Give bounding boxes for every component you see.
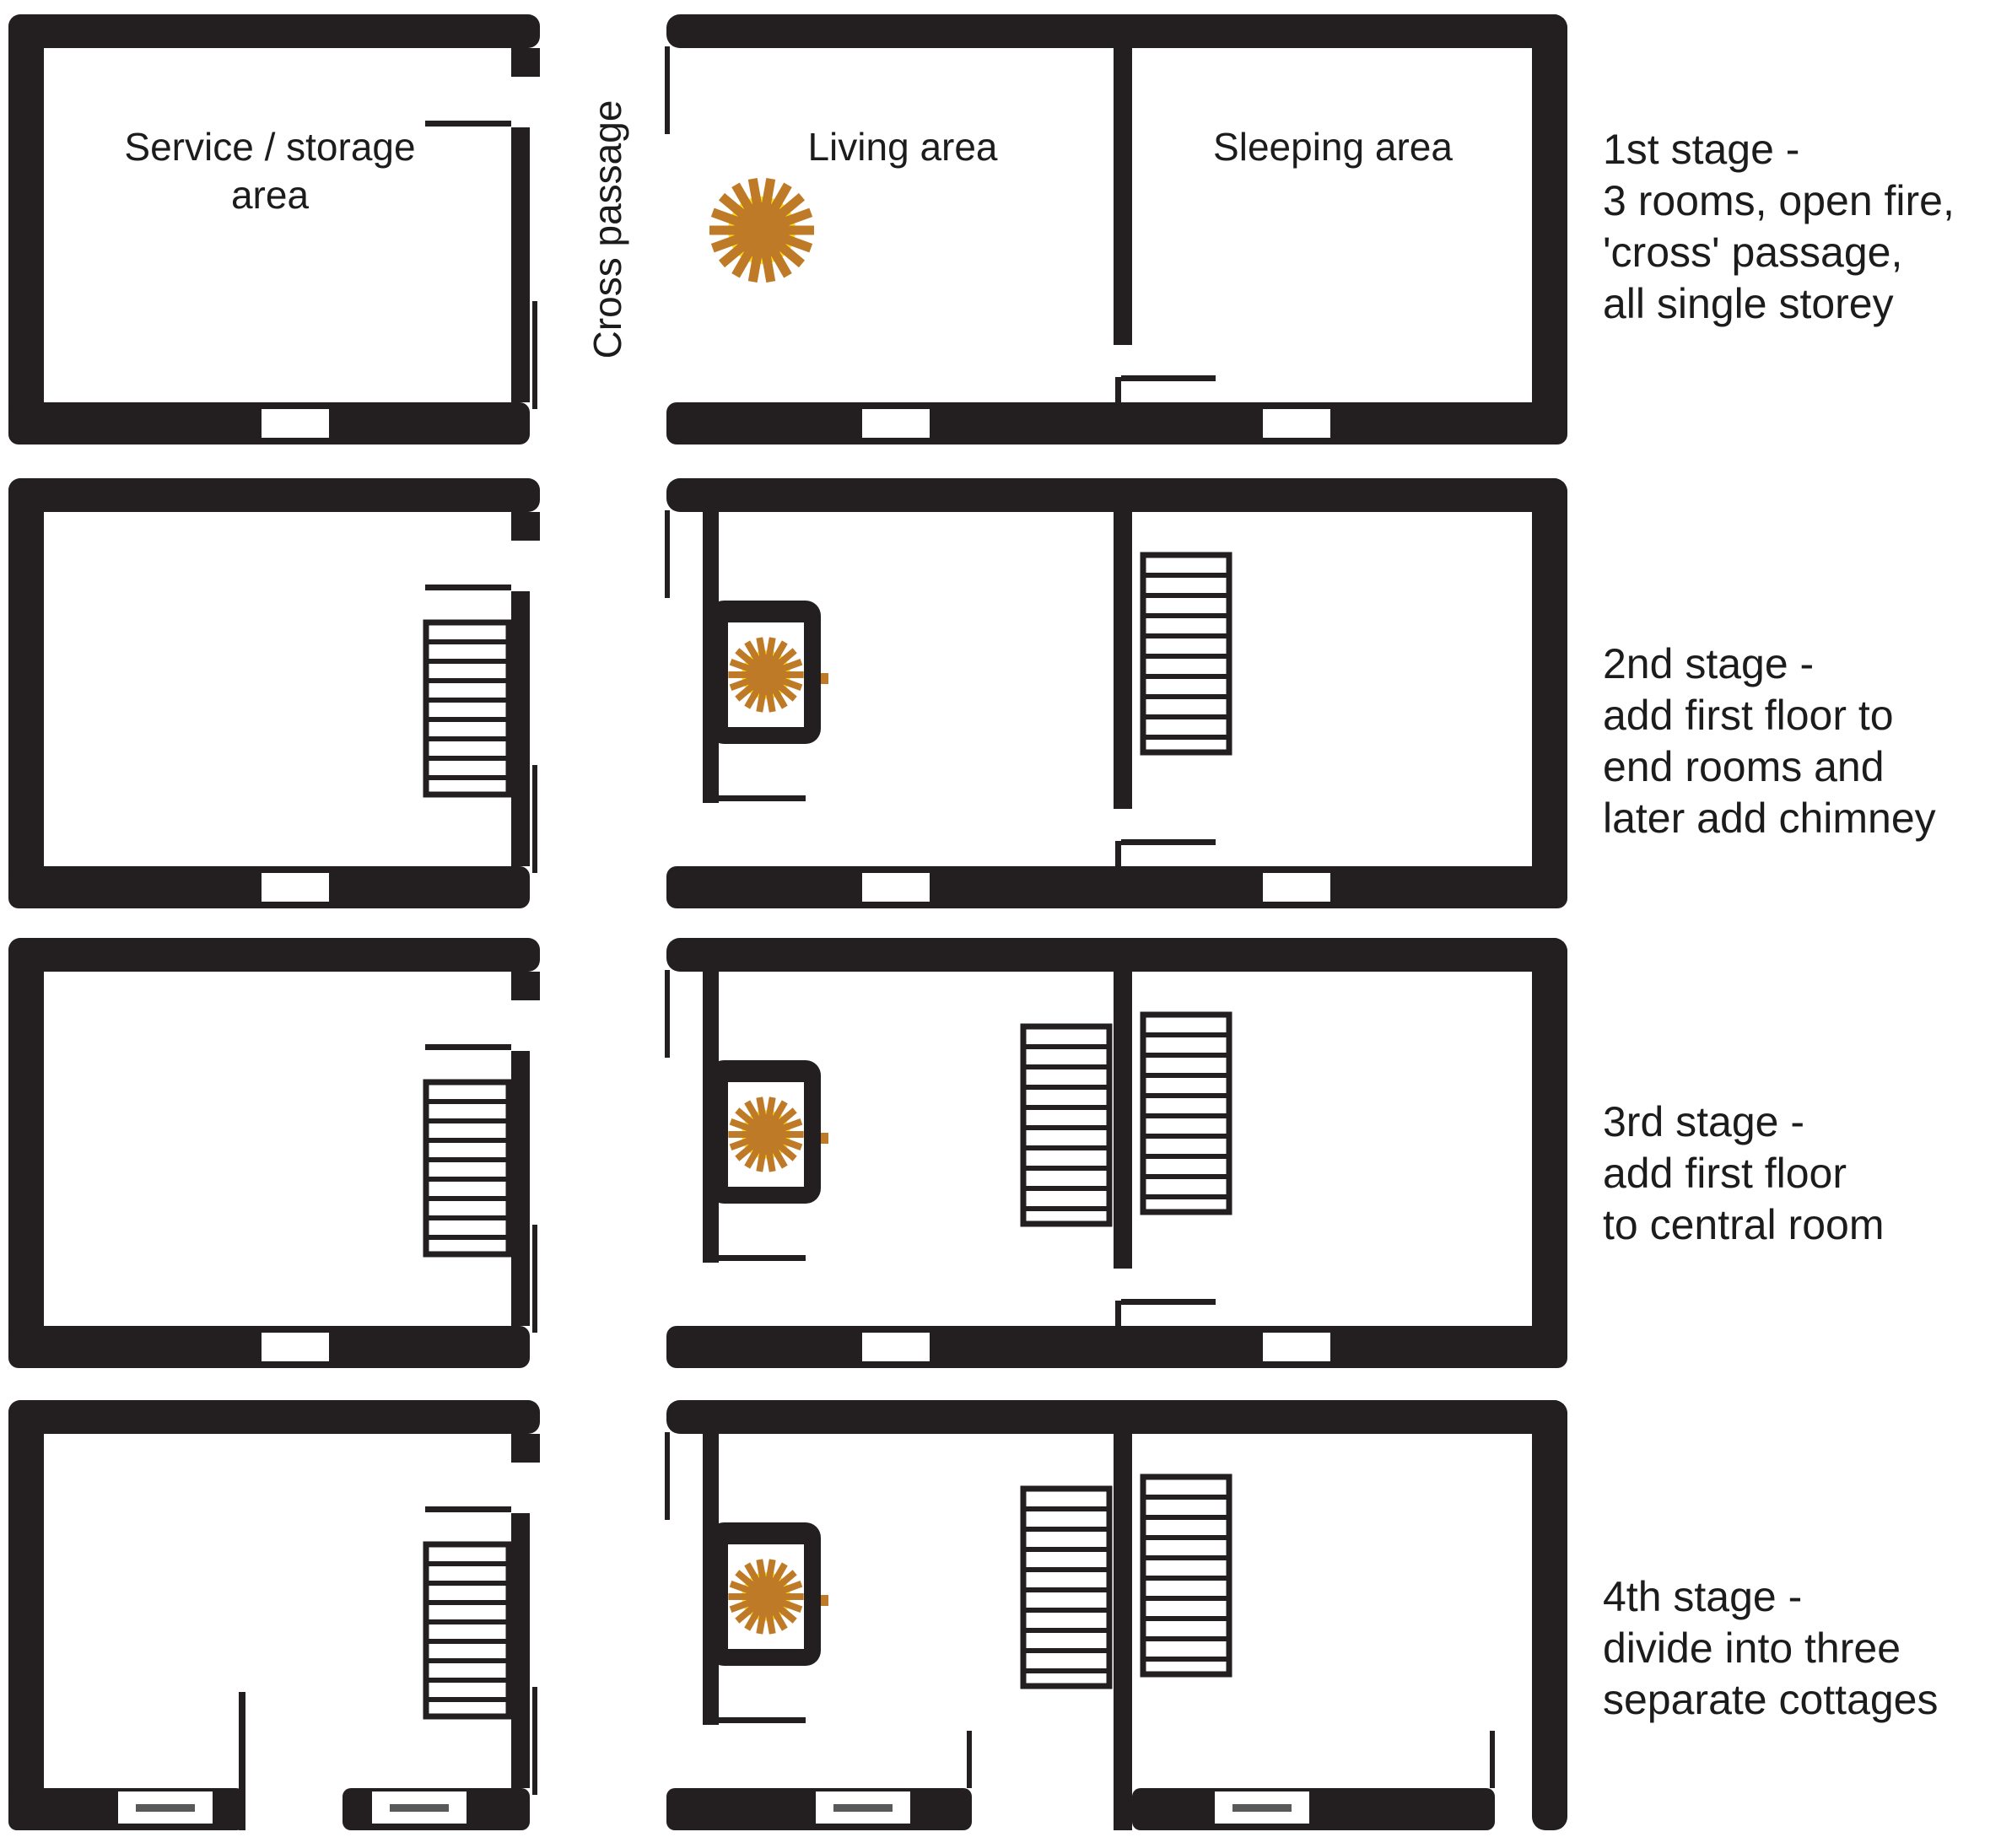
- wall: [666, 938, 1567, 972]
- window-opening-icon: [262, 873, 329, 902]
- wall: [666, 1400, 1567, 1434]
- staircase-icon: [1023, 1026, 1109, 1224]
- window-opening-icon: [1263, 409, 1330, 438]
- caption-line: 3 rooms, open fire,: [1603, 177, 1955, 224]
- stage-1-floorplan: Service / storage area Cross passage Liv…: [8, 14, 1955, 444]
- door-leaf-icon: [719, 1717, 806, 1723]
- caption-line: add first floor to: [1603, 692, 1894, 739]
- wall: [511, 1513, 530, 1788]
- staircase-icon: [1143, 1477, 1229, 1674]
- partition-wall: [239, 1692, 245, 1830]
- wall: [511, 591, 530, 866]
- main-building: [665, 478, 1567, 908]
- door-leaf-icon: [532, 765, 537, 873]
- wall: [1532, 1400, 1567, 1830]
- window-opening-icon: [1263, 1333, 1330, 1361]
- wall: [8, 938, 540, 972]
- window-opening-icon: [1215, 1791, 1309, 1824]
- caption-line: separate cottages: [1603, 1676, 1939, 1723]
- caption-line: 1st stage -: [1603, 126, 1799, 173]
- wall: [1532, 14, 1567, 444]
- service-building: [8, 478, 540, 908]
- dividing-wall: [1114, 1434, 1132, 1830]
- caption-line: 4th stage -: [1603, 1573, 1802, 1620]
- door-jamb: [511, 972, 540, 1000]
- door-jamb: [511, 48, 540, 77]
- caption-line: end rooms and: [1603, 743, 1885, 790]
- main-building: [665, 938, 1567, 1368]
- window-opening-icon: [862, 873, 930, 902]
- door-leaf-icon: [425, 1506, 511, 1512]
- stage-2-caption: 2nd stage - add first floor to end rooms…: [1603, 640, 1936, 842]
- fireplace-nub: [821, 1595, 828, 1606]
- cross-passage-label: Cross passage: [585, 100, 629, 359]
- door-leaf-icon: [532, 301, 537, 409]
- window-opening-icon: [372, 1791, 467, 1824]
- door-jamb: [1115, 1301, 1121, 1326]
- staircase-icon: [426, 622, 509, 795]
- wall: [511, 127, 530, 402]
- door-leaf-icon: [532, 1225, 537, 1333]
- fireplace-nub: [821, 1133, 828, 1144]
- window-opening-icon: [262, 1333, 329, 1361]
- window-opening-icon: [118, 1791, 213, 1824]
- staircase-icon: [1143, 555, 1229, 752]
- wall: [666, 478, 1567, 512]
- wall: [666, 866, 1567, 908]
- staircase-icon: [1143, 1015, 1229, 1212]
- wall: [511, 1051, 530, 1326]
- window-opening-icon: [862, 409, 930, 438]
- caption-line: 'cross' passage,: [1603, 229, 1902, 276]
- wall: [8, 14, 540, 48]
- dividing-wall: [1114, 512, 1132, 809]
- caption-line: to central room: [1603, 1201, 1884, 1248]
- stage-1-caption: 1st stage - 3 rooms, open fire, 'cross' …: [1603, 126, 1955, 327]
- floor-plan-svg: Service / storage area Cross passage Liv…: [0, 0, 2001, 1848]
- caption-line: add first floor: [1603, 1150, 1847, 1197]
- wall: [8, 1400, 44, 1830]
- main-building: [665, 1400, 1567, 1830]
- service-area-label-line2: area: [231, 173, 309, 217]
- staircase-icon: [1023, 1489, 1109, 1686]
- service-area-label: Service / storage: [124, 125, 415, 169]
- window-opening-icon: [862, 1333, 930, 1361]
- fireplace-nub: [821, 673, 828, 684]
- window-opening-icon: [816, 1791, 910, 1824]
- door-leaf-icon: [719, 1255, 806, 1261]
- door-jamb: [967, 1731, 972, 1788]
- staircase-icon: [426, 1544, 509, 1716]
- wall: [8, 478, 44, 908]
- stage-4-caption: 4th stage - divide into three separate c…: [1603, 1573, 1939, 1723]
- door-leaf-icon: [1121, 1299, 1216, 1305]
- service-building: Service / storage area: [8, 14, 540, 444]
- door-jamb: [1115, 377, 1121, 402]
- stage-3-floorplan: 3rd stage - add first floor to central r…: [8, 938, 1884, 1368]
- caption-line: divide into three: [1603, 1624, 1901, 1672]
- living-area-label: Living area: [807, 125, 997, 169]
- stage-3-caption: 3rd stage - add first floor to central r…: [1603, 1098, 1884, 1248]
- wall: [1532, 938, 1567, 1368]
- door-leaf-icon: [1121, 375, 1216, 381]
- door-jamb: [1115, 841, 1121, 866]
- staircase-icon: [426, 1082, 509, 1254]
- dividing-wall: [1114, 972, 1132, 1269]
- floor-plan-diagram: Service / storage area Cross passage Liv…: [0, 0, 2001, 1848]
- caption-line: 3rd stage -: [1603, 1098, 1804, 1145]
- door-leaf-icon: [425, 585, 511, 590]
- dividing-wall: [1114, 48, 1132, 345]
- door-jamb: [511, 1434, 540, 1463]
- wall: [666, 14, 1567, 48]
- wall: [1132, 1788, 1495, 1830]
- door-jamb: [1490, 1731, 1495, 1788]
- wall: [666, 402, 1567, 444]
- stage-2-floorplan: 2nd stage - add first floor to end rooms…: [8, 478, 1936, 908]
- wall: [8, 14, 44, 444]
- service-building: [8, 1400, 540, 1830]
- door-jamb: [511, 512, 540, 541]
- door-leaf-icon: [665, 510, 670, 598]
- window-opening-icon: [1263, 873, 1330, 902]
- wall: [8, 1400, 540, 1434]
- door-leaf-icon: [425, 1044, 511, 1050]
- wall: [666, 1326, 1567, 1368]
- sleeping-area-label: Sleeping area: [1213, 125, 1453, 169]
- door-leaf-icon: [665, 970, 670, 1058]
- door-leaf-icon: [719, 795, 806, 801]
- stage-4-floorplan: 4th stage - divide into three separate c…: [8, 1400, 1939, 1830]
- wall: [8, 478, 540, 512]
- door-leaf-icon: [532, 1687, 537, 1795]
- caption-line: later add chimney: [1603, 795, 1936, 842]
- door-leaf-icon: [665, 46, 670, 134]
- caption-line: all single storey: [1603, 280, 1894, 327]
- door-leaf-icon: [425, 121, 511, 127]
- window-opening-icon: [262, 409, 329, 438]
- door-leaf-icon: [665, 1432, 670, 1520]
- wall: [8, 938, 44, 1368]
- fire-icon: [709, 178, 814, 283]
- caption-line: 2nd stage -: [1603, 640, 1814, 687]
- door-leaf-icon: [1121, 839, 1216, 845]
- main-building: Living area Sleeping area: [665, 14, 1567, 444]
- wall: [1532, 478, 1567, 908]
- service-building: [8, 938, 540, 1368]
